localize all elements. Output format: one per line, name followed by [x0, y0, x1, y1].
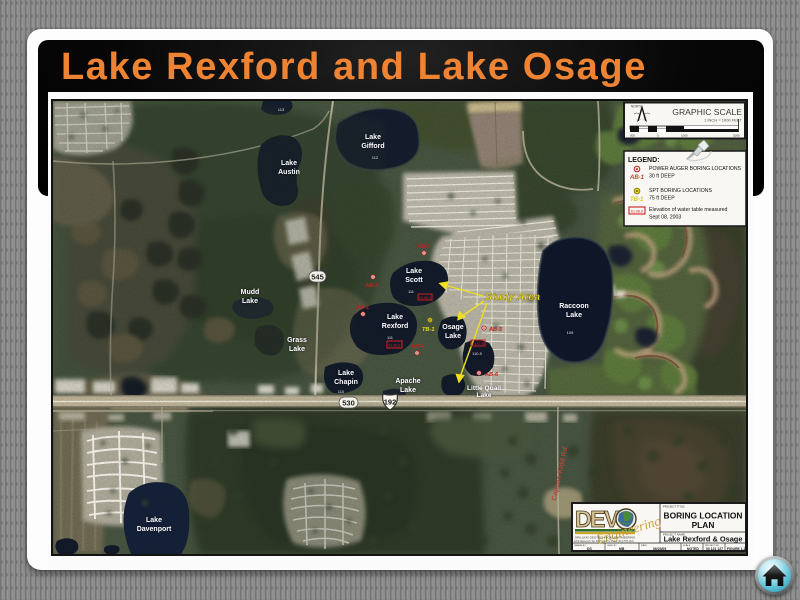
svg-text:03 121 127: 03 121 127 — [706, 547, 723, 551]
svg-text:Davenport: Davenport — [137, 526, 172, 533]
svg-text:LEGEND:: LEGEND: — [628, 157, 660, 164]
svg-text:545: 545 — [311, 273, 324, 282]
svg-text:MB: MB — [619, 547, 625, 551]
svg-text:AB-6: AB-6 — [484, 372, 499, 378]
svg-text:110.5: 110.5 — [472, 351, 482, 356]
svg-text:2000: 2000 — [733, 134, 740, 138]
svg-text:Sept 08, 2003: Sept 08, 2003 — [649, 215, 681, 221]
svg-text:Lake: Lake — [566, 312, 582, 319]
svg-text:75 ft DEEP: 75 ft DEEP — [649, 196, 675, 202]
svg-text:AB-2: AB-2 — [364, 283, 379, 289]
svg-text:30 ft DEEP: 30 ft DEEP — [649, 174, 675, 180]
svg-text:1 INCH = 1000 FEET: 1 INCH = 1000 FEET — [704, 118, 742, 123]
svg-text:CHKD BY: CHKD BY — [607, 545, 617, 547]
svg-text:AB-1: AB-1 — [629, 175, 645, 181]
svg-text:EL97.8: EL97.8 — [472, 342, 483, 346]
svg-text:3200 Masters Dr Ste 300 Tampa: 3200 Masters Dr Ste 300 Tampa FL Phone (… — [574, 540, 634, 543]
svg-text:Lake: Lake — [387, 314, 403, 321]
svg-text:PROJECT TITLE:: PROJECT TITLE: — [663, 505, 685, 509]
svg-text:500: 500 — [630, 134, 635, 138]
svg-text:Lake: Lake — [445, 333, 461, 340]
svg-text:POWER AUGER BORING LOCATIONS: POWER AUGER BORING LOCATIONS — [649, 166, 742, 172]
svg-text:GRAPHIC SCALE: GRAPHIC SCALE — [672, 107, 742, 117]
svg-text:TB-1: TB-1 — [422, 327, 434, 333]
svg-text:NORTH: NORTH — [631, 105, 643, 109]
svg-text:AB-4: AB-4 — [410, 344, 425, 350]
svg-text:Lake: Lake — [400, 387, 416, 394]
svg-text:111: 111 — [387, 335, 394, 340]
svg-text:Scott: Scott — [405, 277, 423, 284]
svg-text:TB-1: TB-1 — [630, 197, 644, 203]
svg-text:AB-5: AB-5 — [488, 327, 503, 333]
svg-text:Lake: Lake — [146, 517, 162, 524]
svg-text:DATE: DATE — [641, 544, 647, 547]
svg-text:Lake: Lake — [406, 268, 422, 275]
svg-text:Lake: Lake — [242, 298, 258, 305]
svg-text:AB-3: AB-3 — [416, 244, 431, 250]
svg-text:Elevation of water table measu: Elevation of water table measured — [649, 207, 728, 213]
svg-text:Lake Rexford & Osage: Lake Rexford & Osage — [664, 535, 743, 544]
svg-text:Mudd: Mudd — [241, 289, 260, 296]
svg-text:SPT BORING LOCATIONS: SPT BORING LOCATIONS — [649, 188, 712, 194]
svg-text:105: 105 — [567, 330, 574, 335]
svg-text:Apache: Apache — [395, 378, 420, 385]
svg-text:Raccoon: Raccoon — [559, 303, 589, 310]
svg-text:BORING LOCATION: BORING LOCATION — [664, 511, 743, 521]
svg-text:Lake: Lake — [289, 346, 305, 353]
svg-text:Rexford: Rexford — [382, 323, 408, 330]
svg-text:112: 112 — [372, 155, 379, 160]
svg-text:EL98.4: EL98.4 — [419, 296, 430, 300]
svg-text:DRAWN BY: DRAWN BY — [574, 544, 586, 547]
svg-text:Lake: Lake — [281, 160, 297, 167]
svg-text:Little Quail: Little Quail — [467, 385, 501, 392]
svg-text:NOTED: NOTED — [687, 547, 699, 551]
svg-text:Grass: Grass — [287, 337, 307, 344]
svg-text:111: 111 — [408, 289, 415, 294]
svg-text:AB-1: AB-1 — [355, 305, 369, 311]
svg-text:DS: DS — [587, 547, 592, 551]
svg-text:Lake: Lake — [338, 370, 354, 377]
svg-text:Lake: Lake — [365, 134, 381, 141]
svg-text:FIGURE 1.2: FIGURE 1.2 — [727, 547, 746, 551]
svg-text:Chapin: Chapin — [334, 379, 358, 386]
svg-text:113: 113 — [278, 107, 285, 112]
svg-text:110: 110 — [338, 389, 345, 394]
svg-text:192: 192 — [384, 398, 397, 407]
svg-text:PLAN: PLAN — [692, 520, 715, 530]
svg-text:EL98.6: EL98.6 — [388, 343, 400, 347]
svg-text:530: 530 — [342, 399, 355, 408]
svg-text:Lake: Lake — [476, 392, 491, 399]
svg-text:DRILLING GEOTECHNICAL ENGINE: DRILLING GEOTECHNICAL ENGINEERING — [575, 536, 636, 540]
svg-text:Austin: Austin — [278, 169, 300, 176]
svg-text:06/23/05: 06/23/05 — [653, 547, 666, 551]
svg-text:Gifford: Gifford — [361, 143, 384, 150]
svg-text:EL98.6: EL98.6 — [631, 209, 643, 213]
svg-text:Study Area: Study Area — [485, 291, 540, 303]
svg-text:Osage: Osage — [442, 324, 464, 331]
svg-text:1000: 1000 — [681, 134, 688, 138]
